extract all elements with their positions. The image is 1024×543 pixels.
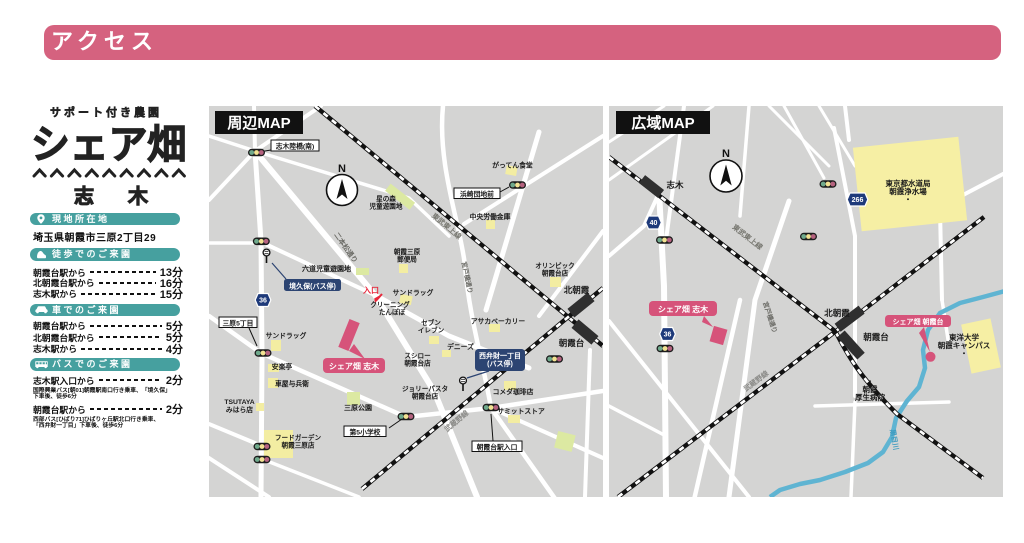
svg-text:コメダ珈琲店: コメダ珈琲店 <box>493 387 534 396</box>
svg-text:朝霞三原郵便局: 朝霞三原郵便局 <box>394 247 421 264</box>
svg-text:六道児童遊園地: 六道児童遊園地 <box>302 264 351 273</box>
svg-text:三原公園: 三原公園 <box>344 403 372 412</box>
svg-text:アサカベーカリー: アサカベーカリー <box>471 318 526 326</box>
svg-text:境久保(バス停): 境久保(バス停) <box>289 282 336 291</box>
svg-text:セブンイレブン: セブンイレブン <box>418 318 445 335</box>
svg-text:N: N <box>338 163 346 175</box>
svg-text:第5小学校: 第5小学校 <box>350 428 381 437</box>
svg-text:がってん食堂: がってん食堂 <box>492 161 533 170</box>
svg-text:入口: 入口 <box>362 286 379 295</box>
svg-text:シェア畑 志木: シェア畑 志木 <box>329 361 380 371</box>
svg-text:N: N <box>722 148 730 160</box>
svg-text:サミットストア: サミットストア <box>497 408 545 416</box>
svg-text:36: 36 <box>259 298 267 305</box>
svg-text:周辺MAP: 周辺MAP <box>227 114 290 132</box>
svg-text:朝霞台駅入口: 朝霞台駅入口 <box>477 443 518 452</box>
svg-text:車屋与兵衛: 車屋与兵衛 <box>275 379 309 388</box>
svg-text:北朝霞: 北朝霞 <box>824 308 850 318</box>
svg-text:スシロー朝霞台店: スシロー朝霞台店 <box>404 352 431 368</box>
svg-text:北朝霞: 北朝霞 <box>564 285 590 295</box>
svg-text:40: 40 <box>650 220 658 227</box>
svg-text:浜崎団地前: 浜崎団地前 <box>460 190 494 199</box>
svg-text:朝霞台: 朝霞台 <box>559 338 585 348</box>
svg-text:デニーズ: デニーズ <box>447 342 474 351</box>
svg-text:安楽亭: 安楽亭 <box>272 362 293 371</box>
svg-text:サンドラッグ: サンドラッグ <box>393 288 434 297</box>
svg-text:266: 266 <box>852 197 864 204</box>
svg-text:シェア畑 朝霞台: シェア畑 朝霞台 <box>893 317 944 326</box>
svg-text:三原5丁目: 三原5丁目 <box>223 320 254 328</box>
svg-text:志木陸橋(南): 志木陸橋(南) <box>276 142 315 151</box>
svg-text:志木: 志木 <box>666 180 684 190</box>
svg-text:シェア畑 志木: シェア畑 志木 <box>658 304 709 314</box>
svg-text:朝霞台: 朝霞台 <box>863 332 889 342</box>
svg-text:サンドラッグ: サンドラッグ <box>266 331 307 340</box>
svg-text:36: 36 <box>664 332 672 339</box>
svg-text:TSUTAYAみはら店: TSUTAYAみはら店 <box>224 399 254 414</box>
svg-text:中央労働金庫: 中央労働金庫 <box>470 212 511 221</box>
svg-text:広域MAP: 広域MAP <box>631 114 694 132</box>
